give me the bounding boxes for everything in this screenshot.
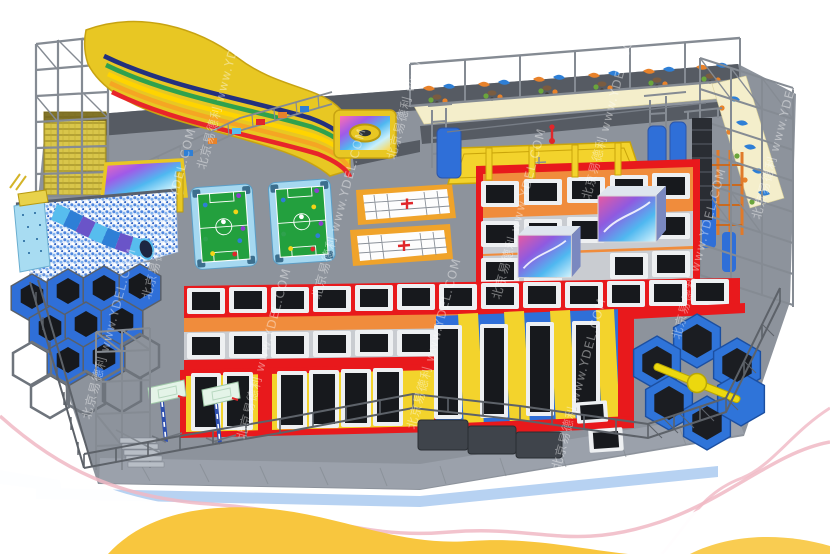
- trampoline-park-render: 北京易德利 www.YDEL.COM 北京易德利 www.YDEL.COM 北京…: [0, 0, 830, 554]
- render-canvas: 北京易德利 www.YDEL.COM 北京易德利 www.YDEL.COM 北京…: [0, 0, 830, 554]
- bottom-wave-yellow: [108, 507, 628, 554]
- court-2: [350, 224, 453, 266]
- court-1: [356, 184, 456, 225]
- slam-dunk-zone: [148, 364, 440, 444]
- sweeper-hub: [688, 374, 707, 393]
- graphic-airbag-cube-2: [518, 226, 581, 278]
- graphic-airbag-cube-1: [598, 186, 666, 242]
- pad-tower: [437, 128, 461, 178]
- lane-trampolines: [418, 307, 634, 458]
